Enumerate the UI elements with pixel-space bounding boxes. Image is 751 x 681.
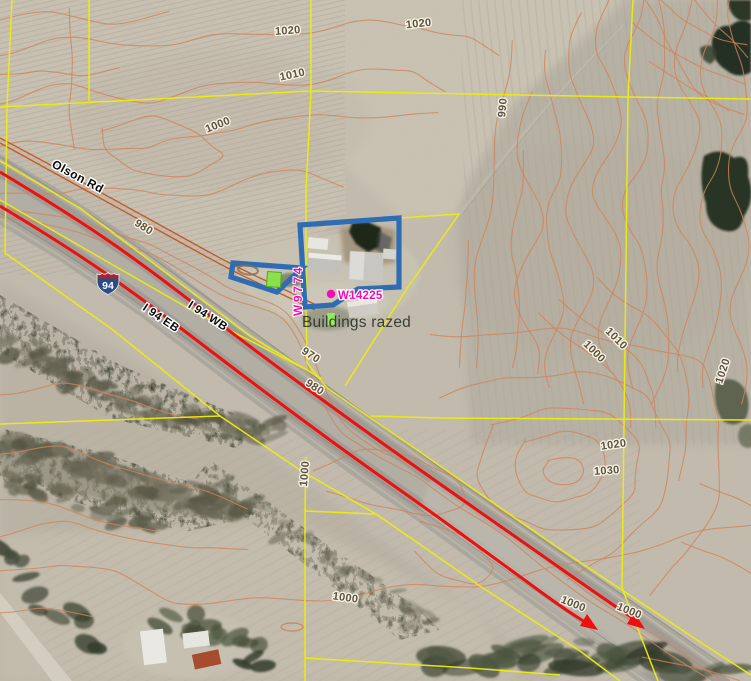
svg-text:1000: 1000 [298, 460, 312, 487]
svg-text:1020: 1020 [275, 24, 301, 38]
svg-text:990: 990 [496, 98, 510, 118]
svg-text:W9774: W9774 [291, 265, 305, 316]
svg-text:1030: 1030 [594, 464, 620, 478]
svg-text:94: 94 [102, 280, 114, 292]
svg-text:Buildings razed: Buildings razed [302, 314, 411, 331]
svg-text:W14225: W14225 [338, 290, 383, 302]
